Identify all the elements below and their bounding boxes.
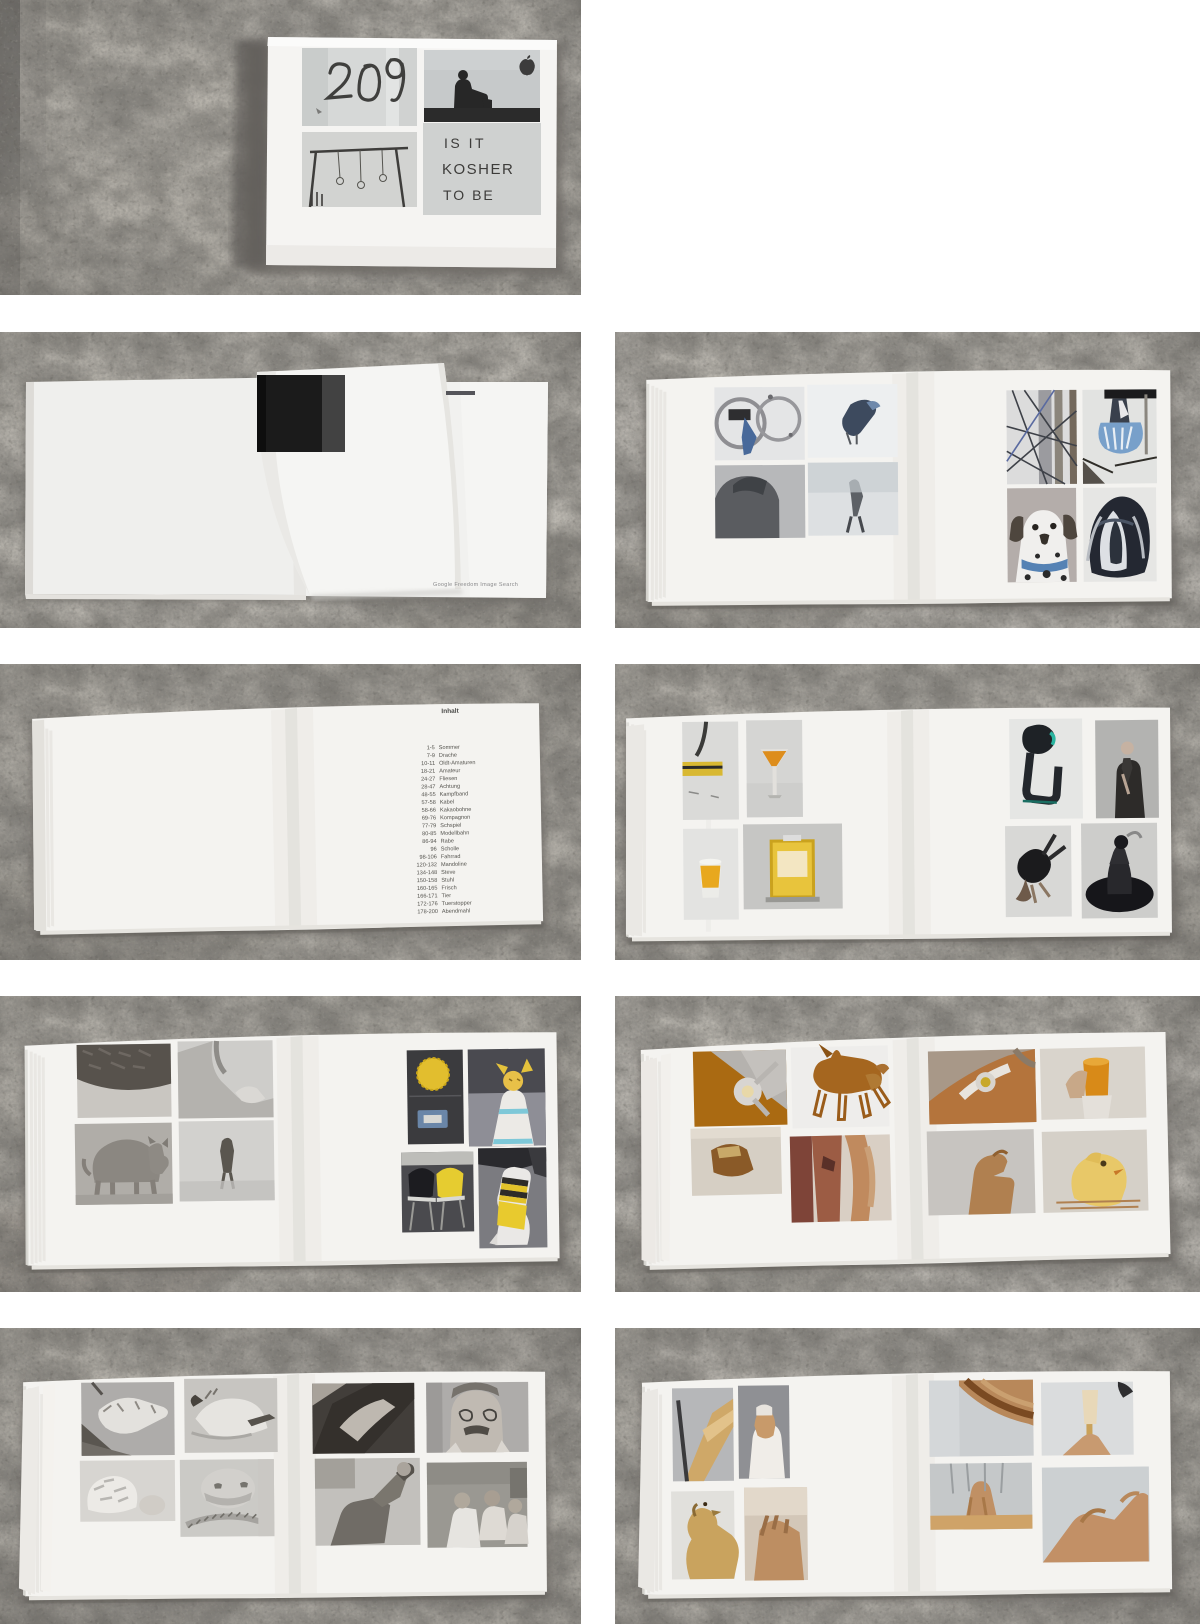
svg-text:Modellbahn: Modellbahn	[440, 830, 469, 837]
svg-text:Kompagnon: Kompagnon	[440, 815, 470, 822]
svg-text:Achtung: Achtung	[439, 784, 460, 790]
svg-text:18-21: 18-21	[421, 769, 435, 775]
svg-text:Sommer: Sommer	[439, 745, 460, 751]
svg-text:96: 96	[430, 847, 436, 853]
svg-text:166-171: 166-171	[417, 893, 438, 899]
svg-text:Tuerstopper: Tuerstopper	[442, 901, 472, 908]
svg-text:Mandoline: Mandoline	[441, 862, 467, 868]
svg-text:KOSHER: KOSHER	[442, 161, 514, 178]
svg-text:Google Freedom Image Search: Google Freedom Image Search	[433, 582, 518, 588]
svg-text:80-85: 80-85	[422, 831, 436, 837]
svg-text:Scholle: Scholle	[441, 846, 459, 852]
svg-text:150-158: 150-158	[417, 878, 438, 884]
svg-text:77-79: 77-79	[422, 823, 436, 829]
svg-text:178-200: 178-200	[417, 909, 438, 915]
svg-text:Fahrrad: Fahrrad	[441, 854, 461, 860]
svg-text:24-27: 24-27	[421, 776, 435, 782]
svg-text:86-94: 86-94	[422, 839, 436, 845]
svg-text:Amateur: Amateur	[439, 768, 460, 774]
svg-text:48-55: 48-55	[421, 792, 435, 798]
svg-text:Steve: Steve	[441, 870, 455, 876]
svg-text:Tier: Tier	[442, 893, 452, 899]
svg-text:Kakaobohne: Kakaobohne	[440, 807, 472, 814]
svg-text:69-76: 69-76	[422, 815, 436, 821]
svg-text:TO BE: TO BE	[443, 187, 495, 203]
svg-text:Rabe: Rabe	[441, 838, 454, 844]
svg-text:Inhalt: Inhalt	[441, 708, 459, 715]
svg-text:Drache: Drache	[439, 753, 457, 759]
svg-text:58-66: 58-66	[422, 808, 436, 814]
svg-text:160-165: 160-165	[417, 886, 438, 892]
svg-text:Oldt-Amaturen: Oldt-Amaturen	[439, 760, 475, 767]
svg-text:1-5: 1-5	[427, 745, 435, 751]
svg-text:172-176: 172-176	[417, 901, 438, 907]
svg-text:120-132: 120-132	[416, 862, 437, 868]
svg-text:Frisch: Frisch	[441, 885, 456, 891]
svg-text:98-106: 98-106	[419, 854, 437, 860]
svg-text:IS IT: IS IT	[444, 135, 486, 151]
svg-text:10-11: 10-11	[421, 761, 435, 767]
svg-text:57-58: 57-58	[421, 800, 435, 806]
svg-text:Kampfband: Kampfband	[440, 791, 469, 798]
svg-text:28-47: 28-47	[421, 784, 435, 790]
svg-text:134-148: 134-148	[417, 870, 438, 876]
svg-text:Fliesen: Fliesen	[439, 776, 457, 782]
svg-text:7-9: 7-9	[427, 753, 435, 759]
svg-text:Abendmahl: Abendmahl	[442, 908, 470, 915]
svg-text:Schspiel: Schspiel	[440, 823, 461, 829]
svg-text:Stuhl: Stuhl	[441, 877, 454, 883]
svg-text:Kabel: Kabel	[440, 799, 454, 805]
